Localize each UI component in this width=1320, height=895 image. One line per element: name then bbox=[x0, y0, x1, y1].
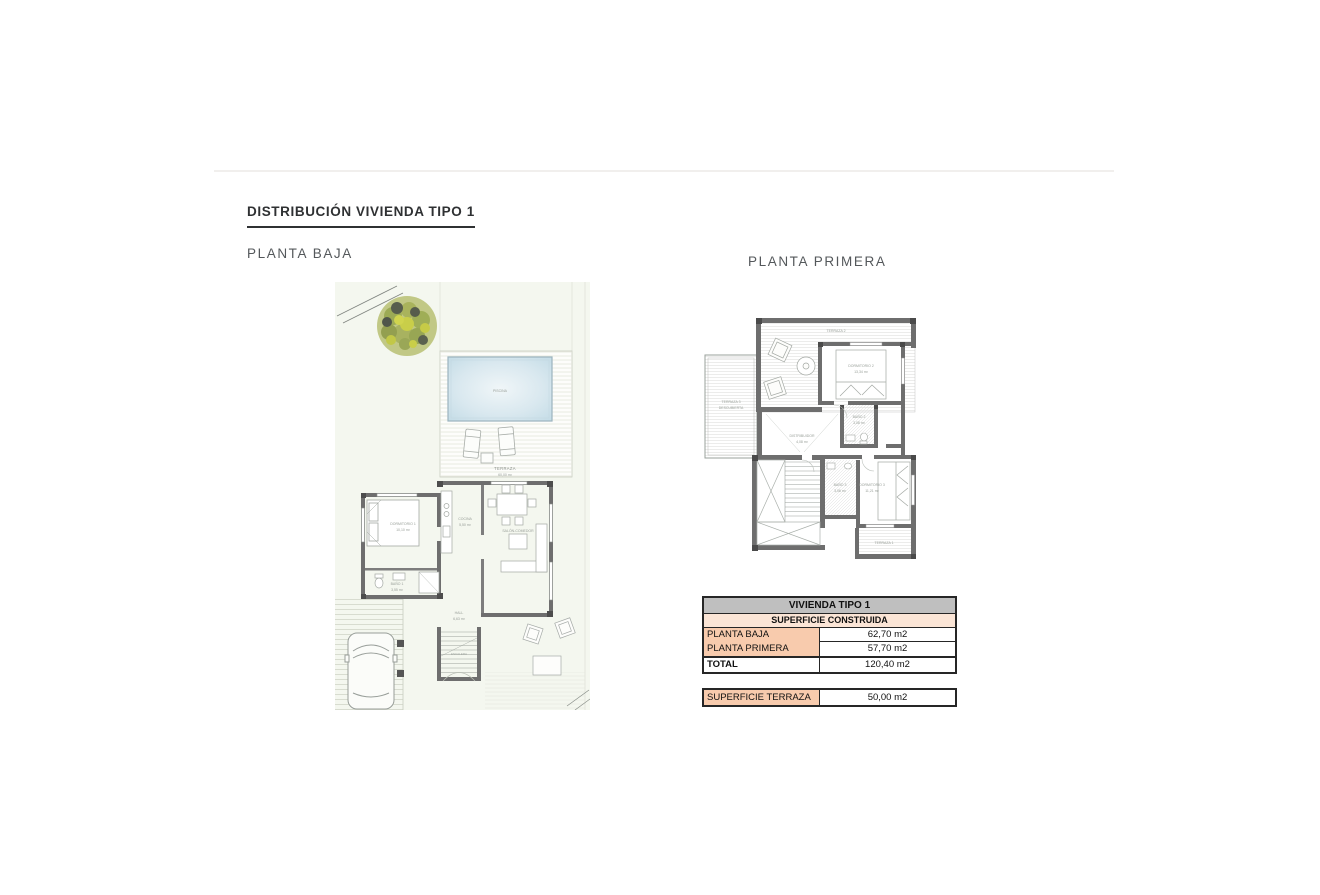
tree-icon bbox=[377, 296, 437, 356]
bathroom3-area: 3,06 m² bbox=[834, 489, 847, 493]
void-lower-icon bbox=[757, 522, 820, 545]
row-label: TOTAL bbox=[704, 658, 820, 672]
pool-terrace: PISCINA TERRAZA 60,00 m² bbox=[440, 351, 572, 477]
table-subtitle: SUPERFICIE CONSTRUIDA bbox=[704, 614, 955, 628]
hallway-area: 4,08 m² bbox=[796, 440, 809, 444]
terrace3: TERRAZA 3 DESCUBIERTA bbox=[705, 355, 757, 458]
planta-baja-floorplan: PISCINA TERRAZA 60,00 m² bbox=[335, 282, 590, 710]
bedroom2-label: DORMITORIO 2 bbox=[848, 364, 874, 368]
terrace-area: 60,00 m² bbox=[498, 473, 513, 477]
bathroom1-label: BAÑO 1 bbox=[391, 581, 404, 586]
top-divider bbox=[214, 170, 1114, 172]
terrace3-label-2: DESCUBIERTA bbox=[719, 406, 744, 410]
bed3-icon bbox=[878, 462, 910, 520]
kitchen-icons bbox=[441, 491, 452, 553]
plan-label-planta-primera: PLANTA PRIMERA bbox=[748, 254, 886, 269]
bathroom2-label: BAÑO 2 bbox=[853, 414, 866, 419]
row-label: PLANTA PRIMERA bbox=[704, 642, 820, 656]
surface-table: VIVIENDA TIPO 1 SUPERFICIE CONSTRUIDA PL… bbox=[702, 596, 957, 674]
bedroom3-area: 11,21 m² bbox=[865, 489, 879, 493]
hall-area: 6,63 m² bbox=[453, 617, 466, 621]
terrace1-label: TERRAZA 1 bbox=[874, 541, 893, 545]
table-row-total: TOTAL 120,40 m2 bbox=[704, 656, 955, 672]
hall-label: HALL bbox=[455, 611, 464, 615]
gate-post bbox=[397, 670, 404, 677]
bedroom1-area: 10,10 m² bbox=[396, 528, 411, 532]
table-row: PLANTA PRIMERA 57,70 m2 bbox=[704, 642, 955, 656]
living-label: SALÓN-COMEDOR bbox=[502, 528, 534, 533]
plan-label-planta-baja: PLANTA BAJA bbox=[247, 246, 353, 261]
bedroom1-label: DORMITORIO 1 bbox=[390, 522, 416, 526]
terrace2-label: TERRAZA 2 bbox=[826, 329, 845, 333]
bed2-icon bbox=[836, 350, 886, 399]
bathroom1-area: 3,55 m² bbox=[391, 588, 404, 592]
page-title: DISTRIBUCIÓN VIVIENDA TIPO 1 bbox=[247, 204, 475, 228]
planta-primera-floorplan: TERRAZA 2 TERRAZA 3 DESCUBIERTA bbox=[700, 310, 920, 560]
bedroom3-label: DORMITORIO 3 bbox=[859, 483, 885, 487]
bathroom2-area: 3,08 m² bbox=[853, 421, 866, 425]
hallway-label: DISTRIBUIDOR bbox=[789, 434, 815, 438]
terrace-table: SUPERFICIE TERRAZA 50,00 m2 bbox=[702, 688, 957, 707]
terrace-label: TERRAZA bbox=[494, 466, 516, 471]
row-label: PLANTA BAJA bbox=[704, 628, 820, 642]
patio-deck bbox=[485, 672, 585, 710]
table-row: PLANTA BAJA 62,70 m2 bbox=[704, 628, 955, 642]
stairwell-void-icon bbox=[757, 460, 785, 522]
car-icon bbox=[345, 633, 397, 709]
row-value: 120,40 m2 bbox=[820, 658, 955, 672]
kitchen-area: 5,50 m² bbox=[459, 523, 472, 527]
row-value: 62,70 m2 bbox=[820, 628, 955, 642]
page: DISTRIBUCIÓN VIVIENDA TIPO 1 PLANTA BAJA… bbox=[0, 0, 1320, 895]
row-value: 50,00 m2 bbox=[820, 690, 955, 705]
stairs-label: ESCALERA bbox=[451, 652, 467, 656]
table-row: SUPERFICIE TERRAZA 50,00 m2 bbox=[704, 690, 955, 705]
row-label: SUPERFICIE TERRAZA bbox=[704, 690, 820, 705]
bedroom2-area: 13,34 m² bbox=[854, 370, 869, 374]
pool-label: PISCINA bbox=[493, 389, 508, 393]
row-value: 57,70 m2 bbox=[820, 642, 955, 656]
bathroom3-label: BAÑO 3 bbox=[834, 482, 847, 487]
terrace3-label-1: TERRAZA 3 bbox=[721, 400, 740, 404]
table-title: VIVIENDA TIPO 1 bbox=[704, 598, 955, 614]
kitchen-label: COCINA bbox=[458, 517, 472, 521]
stairs2-icon bbox=[785, 462, 820, 516]
gate-post bbox=[397, 640, 404, 647]
